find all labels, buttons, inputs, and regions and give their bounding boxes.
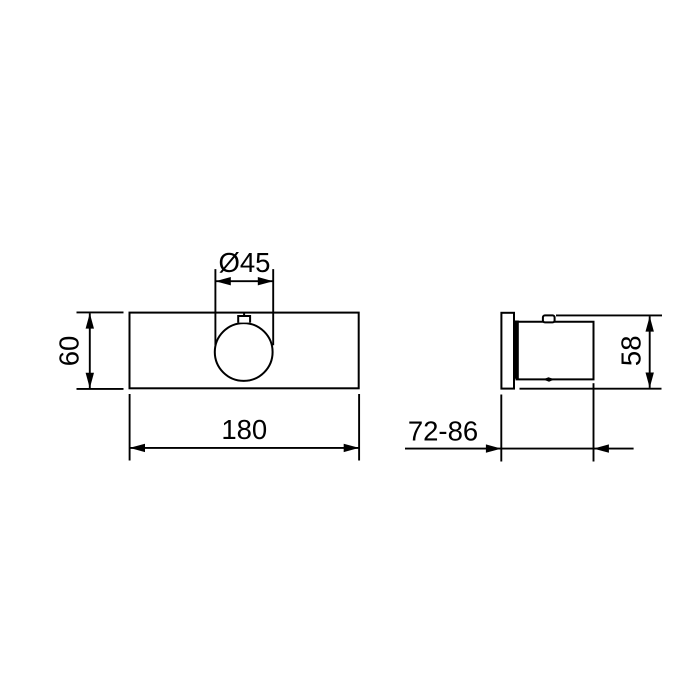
svg-text:60: 60 [54,336,85,367]
svg-text:Ø45: Ø45 [219,247,271,278]
svg-text:72-86: 72-86 [408,416,478,447]
svg-text:180: 180 [221,414,267,445]
svg-text:58: 58 [616,336,647,367]
